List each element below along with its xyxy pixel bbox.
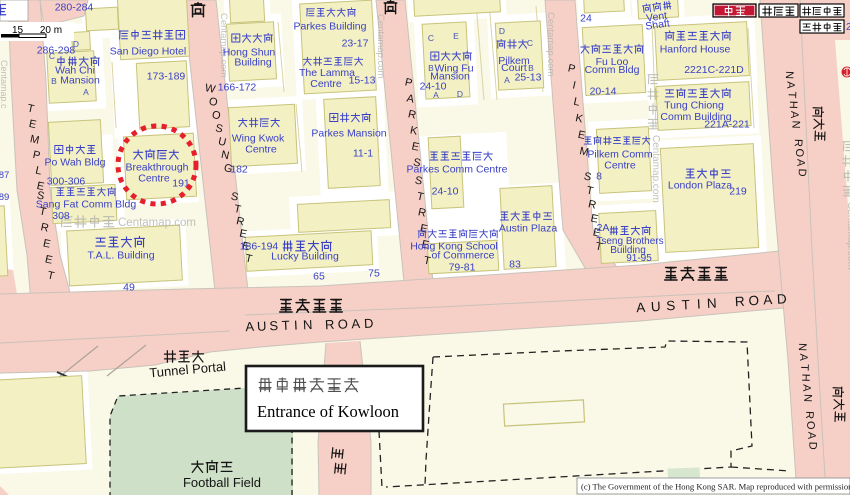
svg-text:286-298: 286-298 [37, 45, 76, 57]
svg-text:Sang Fat Comm Bldg: Sang Fat Comm Bldg [36, 199, 137, 211]
svg-text:Centamap.com: Centamap.com [545, 12, 556, 77]
svg-text:R: R [803, 411, 815, 419]
svg-text:A: A [763, 292, 773, 307]
svg-text:91-95: 91-95 [626, 253, 652, 264]
svg-text:173-189: 173-189 [147, 71, 186, 83]
svg-text:D: D [796, 168, 808, 176]
svg-text:Centre: Centre [138, 173, 170, 185]
svg-text:N: N [796, 343, 808, 351]
svg-text:R: R [735, 294, 746, 310]
svg-text:75: 75 [368, 268, 380, 280]
svg-text:U: U [651, 299, 662, 314]
svg-text:D: D [499, 26, 505, 36]
svg-text:A: A [805, 432, 817, 440]
svg-text:B: B [51, 76, 57, 86]
svg-text:N: N [303, 317, 313, 332]
svg-text:E: E [453, 31, 459, 41]
svg-text:65: 65 [313, 271, 325, 283]
svg-text:R: R [325, 317, 335, 332]
svg-text:O: O [804, 421, 816, 430]
svg-text:London Plaza: London Plaza [668, 180, 732, 192]
svg-text:300-306: 300-306 [47, 176, 86, 188]
svg-text:25-13: 25-13 [515, 72, 542, 84]
svg-text:182: 182 [230, 164, 248, 176]
svg-text:A: A [797, 353, 809, 361]
svg-text:Centre: Centre [604, 160, 636, 172]
svg-text:D: D [806, 442, 818, 450]
svg-text:S: S [666, 298, 676, 313]
svg-text:Centamap.com: Centamap.com [118, 217, 196, 229]
svg-text:Parkes Comm Centre: Parkes Comm Centre [407, 164, 508, 176]
svg-text:Tung Chiong: Tung Chiong [664, 100, 724, 112]
svg-text:49: 49 [123, 282, 135, 294]
svg-text:A: A [794, 159, 806, 167]
svg-text:B: B [428, 63, 434, 73]
svg-text:Entrance of Kowloon: Entrance of Kowloon [257, 402, 399, 421]
svg-text:S: S [269, 318, 279, 333]
svg-text:219: 219 [729, 186, 747, 198]
svg-text:Centamap.com: Centamap.com [650, 135, 661, 203]
svg-text:I: I [696, 296, 701, 311]
svg-text:2: 2 [846, 22, 850, 33]
svg-text:A: A [245, 319, 255, 334]
svg-text:308: 308 [52, 210, 70, 222]
svg-text:A: A [504, 75, 510, 85]
svg-text:A: A [784, 81, 796, 89]
svg-text:2221C-221D: 2221C-221D [684, 64, 744, 76]
svg-text:Mansion: Mansion [60, 75, 100, 87]
svg-text:O: O [337, 316, 348, 332]
svg-text:89: 89 [0, 192, 9, 203]
svg-text:15-13: 15-13 [349, 75, 376, 87]
svg-text:T: T [798, 364, 810, 371]
svg-text:Centamap.c: Centamap.c [0, 60, 9, 109]
svg-text:N: N [783, 71, 795, 79]
svg-text:Centamap.com: Centamap.com [375, 14, 386, 79]
svg-text:Lucky Building: Lucky Building [271, 251, 339, 263]
svg-text:San Diego Hotel: San Diego Hotel [110, 46, 186, 58]
svg-text:B: B [528, 63, 534, 73]
svg-text:O: O [748, 293, 759, 309]
svg-text:Parkes Mansion: Parkes Mansion [311, 128, 386, 140]
svg-text:A: A [351, 316, 361, 331]
svg-text:A: A [83, 87, 89, 97]
svg-text:T.A.L. Building: T.A.L. Building [87, 250, 154, 262]
svg-text:D: D [364, 315, 374, 330]
svg-text:U: U [257, 318, 267, 333]
svg-text:23-17: 23-17 [342, 38, 369, 50]
svg-text:166-172: 166-172 [218, 82, 257, 94]
svg-text:T: T [281, 318, 290, 333]
svg-text:87: 87 [0, 170, 9, 181]
svg-text:83: 83 [509, 259, 521, 271]
svg-text:Centre: Centre [245, 144, 277, 156]
svg-text:Parkes Building: Parkes Building [294, 21, 367, 33]
svg-text:A: A [788, 111, 800, 119]
svg-text:H: H [787, 101, 799, 109]
svg-text:of Commerce: of Commerce [431, 250, 494, 262]
svg-text:T: T [785, 91, 797, 98]
svg-text:D: D [457, 89, 463, 99]
svg-text:N: N [801, 394, 813, 402]
svg-text:T: T [681, 297, 690, 312]
svg-text:8: 8 [596, 171, 602, 183]
svg-text:R: R [792, 139, 804, 147]
svg-text:C: C [428, 33, 434, 43]
svg-text:O: O [793, 148, 805, 157]
svg-text:11-1: 11-1 [353, 148, 373, 160]
svg-text:280-284: 280-284 [55, 2, 94, 14]
svg-text:A: A [636, 300, 646, 315]
svg-text:(c) The Government of the Hong: (c) The Government of the Hong Kong SAR.… [581, 482, 850, 492]
svg-text:Building: Building [234, 57, 272, 69]
svg-text:2A: 2A [597, 222, 610, 234]
svg-text:H: H [799, 374, 811, 382]
svg-text:C: C [49, 51, 55, 61]
svg-text:20-14: 20-14 [590, 86, 617, 98]
svg-text:24-10: 24-10 [432, 186, 459, 198]
svg-text:A: A [433, 90, 439, 100]
svg-text:Football Field: Football Field [183, 475, 261, 490]
svg-text:A: A [800, 384, 812, 392]
svg-text:N: N [789, 120, 801, 128]
svg-text:Centamap.com: Centamap.com [845, 202, 850, 270]
svg-text:79-81: 79-81 [449, 262, 476, 274]
svg-text:D: D [777, 291, 788, 307]
svg-text:Austin Plaza: Austin Plaza [499, 223, 558, 235]
svg-text:221A-221: 221A-221 [704, 119, 750, 131]
svg-text:24: 24 [580, 13, 592, 25]
svg-text:C: C [527, 38, 533, 48]
svg-text:N: N [707, 296, 718, 311]
svg-text:Comm Bldg: Comm Bldg [585, 64, 640, 76]
svg-text:Hanford House: Hanford House [660, 44, 731, 56]
svg-text:Po Wah Bldg: Po Wah Bldg [45, 157, 106, 169]
svg-text:Centamap.com: Centamap.com [218, 13, 229, 78]
svg-text:Centre: Centre [310, 78, 342, 90]
